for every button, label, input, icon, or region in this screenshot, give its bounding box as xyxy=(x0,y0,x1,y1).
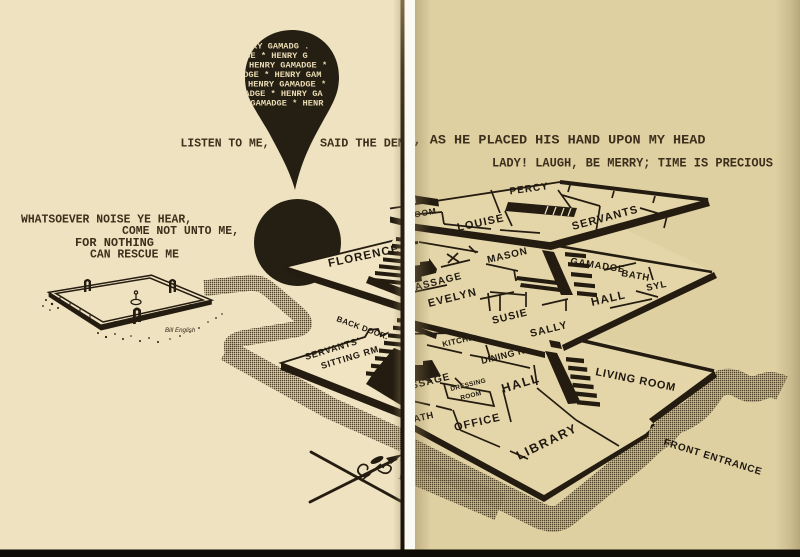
svg-text:RY GAMADG .: RY GAMADG . xyxy=(252,42,309,52)
svg-text:Bill English: Bill English xyxy=(165,327,196,334)
svg-text:SAID THE DEM: SAID THE DEM xyxy=(320,138,405,151)
svg-text:CAN RESCUE ME: CAN RESCUE ME xyxy=(90,249,179,262)
svg-text:HENRY GAMADGE *: HENRY GAMADGE * xyxy=(248,80,326,90)
svg-text:LADY! LAUGH, BE MERRY; TIME I: LADY! LAUGH, BE MERRY; TIME IS PRECIOUS xyxy=(492,156,773,171)
svg-text:LISTEN TO ME,: LISTEN TO ME, xyxy=(181,138,270,151)
svg-text:ADGE * HENRY GAM: ADGE * HENRY GAM xyxy=(238,70,321,80)
svg-text:, AS HE PLACED HIS HAND UPON M: , AS HE PLACED HIS HAND UPON MY HEAD xyxy=(414,133,706,148)
svg-text:HENRY GAMADGE *: HENRY GAMADGE * xyxy=(249,61,327,71)
